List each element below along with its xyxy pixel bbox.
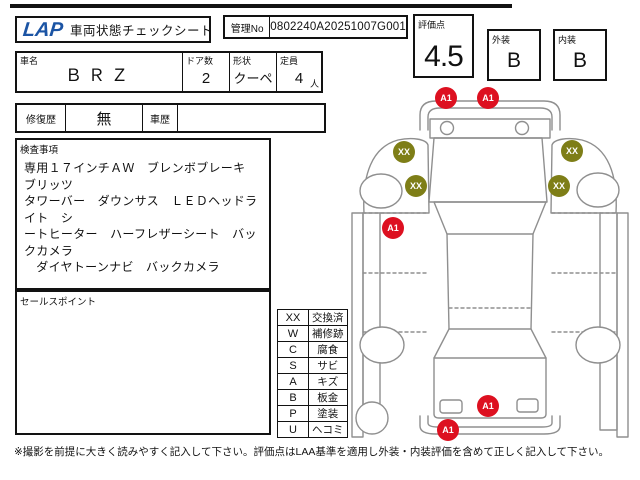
legend-row: W補修跡 — [278, 326, 348, 342]
damage-marker-xx: XX — [393, 141, 415, 163]
damage-marker-a1: A1 — [382, 217, 404, 239]
footer-note: ※撮影を前提に大きく読みやすく記入して下さい。評価点はLAA基準を適用し外装・内… — [14, 444, 634, 459]
damage-marker-a1: A1 — [437, 419, 459, 441]
evaluation-score-box: 評価点 4.5 — [413, 14, 474, 78]
car-name-cell: 車名 ＢＲＺ — [17, 53, 183, 91]
damage-marker-a1: A1 — [477, 395, 499, 417]
legend-row: P塗装 — [278, 406, 348, 422]
legend-code: W — [278, 326, 309, 342]
logo-title-box: LAP 車両状態チェックシート — [15, 16, 211, 43]
car-diagram: A1A1XXXXXXXXA1A1A1 — [350, 85, 640, 445]
top-border-rule — [10, 4, 512, 8]
door-count-cell: ドア数 2 — [183, 53, 230, 91]
door-count-value: 2 — [183, 70, 229, 87]
body-shape-label: 形状 — [233, 54, 251, 67]
interior-grade-label: 内装 — [558, 33, 576, 46]
legend-table: XX交換済W補修跡C腐食SサビAキズB板金P塗装Uヘコミ — [277, 309, 348, 438]
lap-logo: LAP — [22, 20, 64, 40]
management-no-box: 管理No 0802240A20251007G001 — [223, 15, 408, 39]
car-history-label: 車歴 — [143, 105, 178, 131]
legend-meaning: ヘコミ — [309, 422, 348, 438]
interior-grade-box: 内装 B — [553, 29, 607, 81]
car-name-value: ＢＲＺ — [17, 61, 182, 86]
sales-point-box: セールスポイント — [15, 290, 271, 435]
capacity-cell: 定員 4 人 — [277, 53, 321, 91]
door-count-label: ドア数 — [186, 54, 213, 67]
legend-meaning: 補修跡 — [309, 326, 348, 342]
inspection-items-label: 検査事項 — [20, 142, 58, 156]
inspection-text: 専用１７インチＡＷ ブレンボブレーキ ブリッツ タワーバー ダウンサス ＬＥＤヘ… — [24, 160, 265, 276]
car-history-value — [178, 105, 324, 131]
sheet-title: 車両状態チェックシート — [70, 20, 213, 39]
interior-grade-value: B — [555, 49, 605, 73]
exterior-grade-label: 外装 — [492, 33, 510, 46]
legend-row: B板金 — [278, 390, 348, 406]
sales-point-label: セールスポイント — [20, 294, 96, 308]
legend-code: S — [278, 358, 309, 374]
evaluation-score-value: 4.5 — [415, 40, 472, 74]
legend-code: P — [278, 406, 309, 422]
legend-meaning: 板金 — [309, 390, 348, 406]
capacity-label: 定員 — [280, 54, 298, 67]
exterior-grade-box: 外装 B — [487, 29, 541, 81]
legend-body: XX交換済W補修跡C腐食SサビAキズB板金P塗装Uヘコミ — [278, 310, 348, 438]
vehicle-info-box: 車名 ＢＲＺ ドア数 2 形状 クーペ 定員 4 人 — [15, 51, 323, 93]
legend-code: C — [278, 342, 309, 358]
marker-layer: A1A1XXXXXXXXA1A1A1 — [350, 85, 640, 445]
legend-code: XX — [278, 310, 309, 326]
damage-marker-xx: XX — [405, 175, 427, 197]
legend-row: Aキズ — [278, 374, 348, 390]
evaluation-score-label: 評価点 — [418, 18, 445, 31]
legend-row: Uヘコミ — [278, 422, 348, 438]
legend-meaning: 腐食 — [309, 342, 348, 358]
legend-code: A — [278, 374, 309, 390]
management-no-label: 管理No — [225, 17, 270, 37]
inspection-items-box: 検査事項 専用１７インチＡＷ ブレンボブレーキ ブリッツ タワーバー ダウンサス… — [15, 138, 271, 290]
body-shape-value: クーペ — [230, 68, 276, 87]
legend-code: U — [278, 422, 309, 438]
legend-code: B — [278, 390, 309, 406]
legend-meaning: 塗装 — [309, 406, 348, 422]
history-box: 修復歴 無 車歴 — [15, 103, 326, 133]
exterior-grade-value: B — [489, 49, 539, 73]
legend-row: C腐食 — [278, 342, 348, 358]
legend-row: Sサビ — [278, 358, 348, 374]
legend-row: XX交換済 — [278, 310, 348, 326]
repair-history-label: 修復歴 — [17, 105, 66, 131]
body-shape-cell: 形状 クーペ — [230, 53, 277, 91]
legend-meaning: サビ — [309, 358, 348, 374]
check-sheet: LAP 車両状態チェックシート 管理No 0802240A20251007G00… — [0, 0, 640, 480]
damage-marker-a1: A1 — [435, 87, 457, 109]
capacity-unit: 人 — [310, 77, 319, 90]
legend-meaning: キズ — [309, 374, 348, 390]
damage-marker-xx: XX — [548, 175, 570, 197]
repair-history-value: 無 — [66, 105, 143, 131]
damage-marker-xx: XX — [561, 140, 583, 162]
management-no-value: 0802240A20251007G001 — [270, 17, 406, 37]
damage-marker-a1: A1 — [477, 87, 499, 109]
legend-meaning: 交換済 — [309, 310, 348, 326]
